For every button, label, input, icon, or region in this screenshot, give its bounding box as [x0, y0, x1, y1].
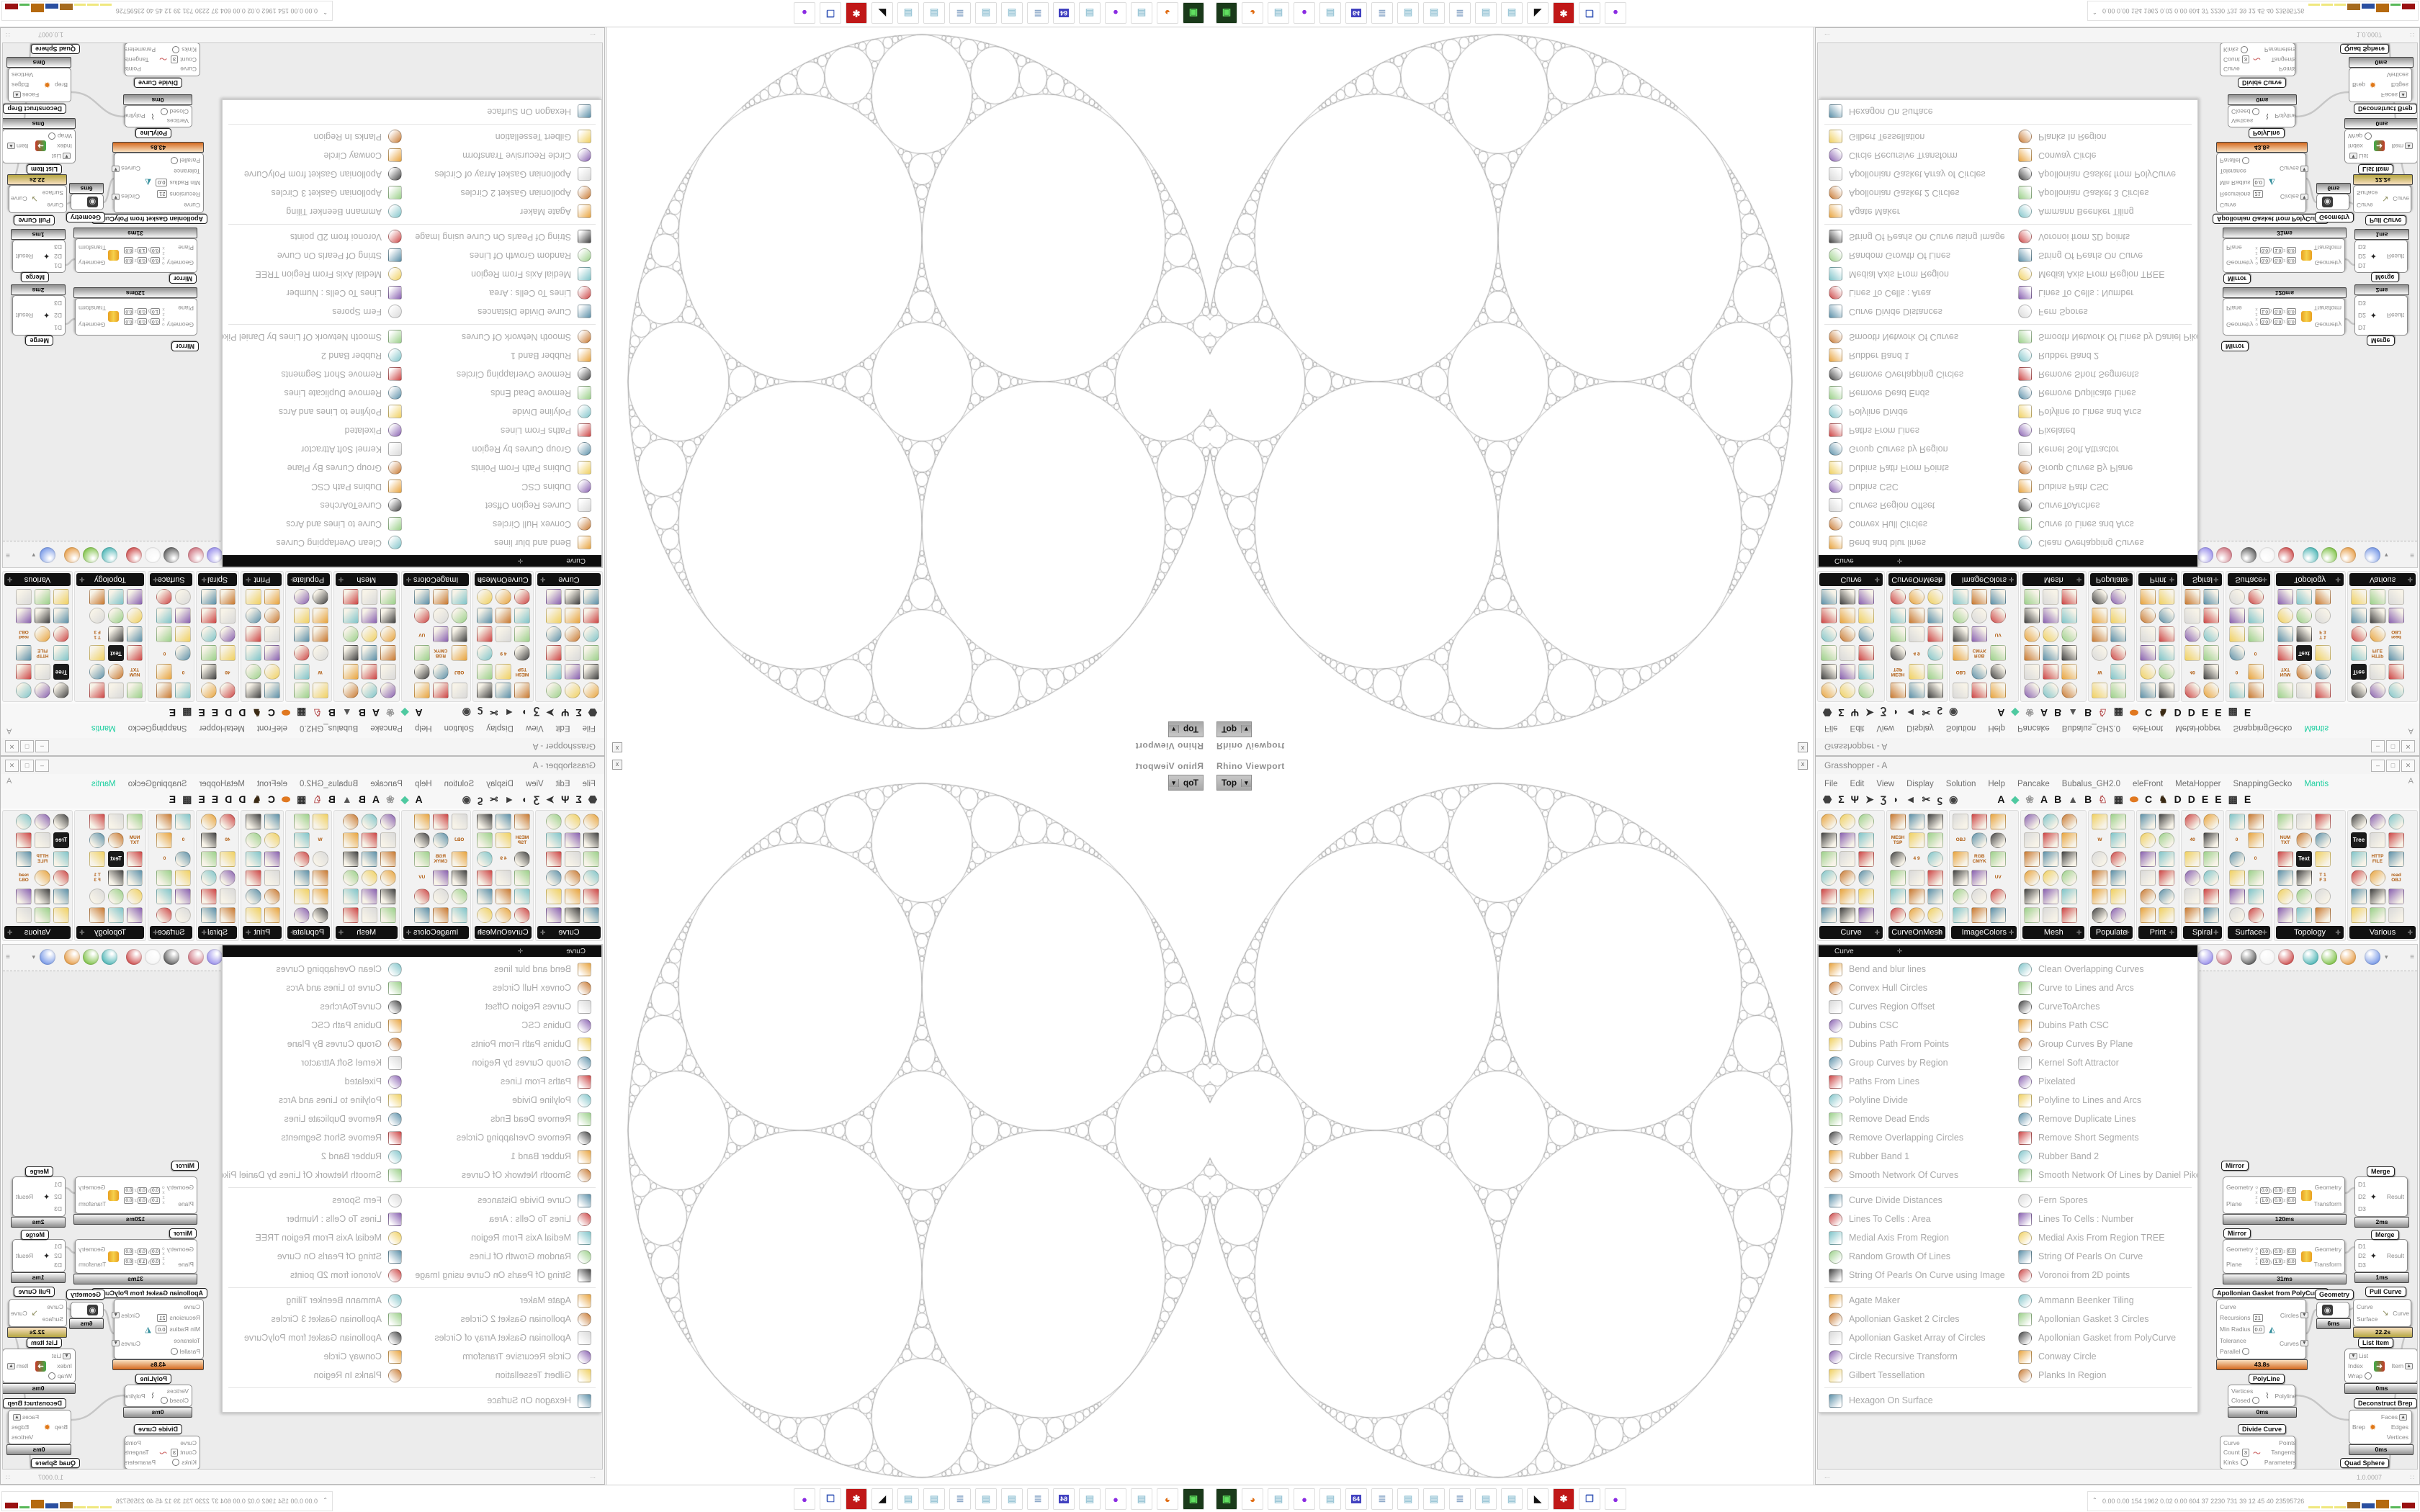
list-item-pixelated[interactable]: Pixelated	[223, 1072, 412, 1091]
component-chip-text[interactable]: Text	[108, 645, 124, 661]
component-icon[interactable]	[89, 907, 105, 923]
component-icon[interactable]	[546, 907, 562, 923]
plugin-tab-16[interactable]: ▲	[2068, 794, 2078, 804]
component-icon[interactable]	[2092, 907, 2107, 923]
component-icon[interactable]	[380, 626, 396, 642]
plugin-tab-12[interactable]: ◆	[2011, 794, 2019, 804]
menu-item-mantis[interactable]: Mantis	[91, 780, 116, 788]
plugin-tab-1[interactable]: Σ	[1838, 794, 1844, 804]
window-blue-icon[interactable]: ❒	[820, 1488, 841, 1510]
minimize-button[interactable]: –	[2371, 760, 2385, 772]
component-chip-http-file[interactable]: HTTP FILE	[2370, 851, 2385, 867]
plugin-tab-4[interactable]: Ʒ	[1881, 794, 1887, 804]
value-box[interactable]: 0.0	[2253, 1326, 2264, 1333]
plugin-tab-14[interactable]: A	[372, 708, 380, 718]
plugin-tab-9[interactable]: ◉	[1949, 794, 1958, 804]
component-icon[interactable]	[2203, 870, 2219, 886]
group-pill-mesh[interactable]: Mesh✛	[2022, 926, 2084, 939]
list-item-gilbert-tessellation[interactable]: Gilbert Tessellation	[1819, 1366, 2008, 1385]
expand-icon[interactable]: ✛	[2335, 576, 2341, 584]
list-item-agate-maker[interactable]: Agate Maker	[412, 202, 601, 221]
component-icon[interactable]	[220, 645, 236, 661]
resize-grip[interactable]: ∷	[5, 1474, 10, 1482]
component-icon[interactable]	[2203, 645, 2219, 661]
plugin-tab-0[interactable]: ⬣	[588, 708, 597, 718]
component-icon[interactable]	[2140, 832, 2156, 848]
maximize-button[interactable]: □	[2386, 740, 2400, 752]
node-label-merge[interactable]: Merge	[2367, 1166, 2395, 1176]
plugin-tab-0[interactable]: ⬣	[1823, 794, 1832, 804]
list-item-smooth-network-of-lines-by-daniel-piker[interactable]: Smooth Network Of Lines by Daniel Piker	[2008, 1166, 2197, 1184]
component-icon[interactable]	[1971, 589, 1987, 605]
component-icon[interactable]	[2203, 626, 2219, 642]
group-pill-surface[interactable]: Surface✛	[150, 573, 192, 586]
toggle-icon[interactable]	[48, 132, 55, 140]
component-icon[interactable]	[156, 832, 172, 848]
list-item-string-of-pearls-on-curve-using-image[interactable]: String Of Pearls On Curve using Image	[412, 1266, 601, 1284]
node-label-mirror[interactable]: Mirror	[169, 274, 197, 284]
list-item-lines-to-cells-area[interactable]: Lines To Cells : Area	[412, 284, 601, 302]
component-icon[interactable]	[2092, 851, 2107, 867]
component-icon[interactable]	[583, 683, 599, 698]
plugin-tab-3[interactable]: ➤	[1865, 794, 1874, 804]
list-item-lines-to-cells-number[interactable]: Lines To Cells : Number	[223, 1210, 412, 1228]
component-icon[interactable]	[2315, 832, 2331, 848]
plugin-tab-26[interactable]: E	[198, 708, 205, 718]
menu-item-snappinggecko[interactable]: SnappingGecko	[128, 724, 187, 732]
list-item-planks-in-region[interactable]: Planks In Region	[2008, 1366, 2197, 1385]
component-icon[interactable]	[2024, 851, 2040, 867]
component-icon[interactable]	[201, 870, 217, 886]
list-item-string-of-pearls-on-curve-using-image[interactable]: String Of Pearls On Curve using Image	[412, 228, 601, 246]
component-icon[interactable]	[2315, 645, 2331, 661]
component-icon[interactable]	[1858, 626, 1874, 642]
component-icon[interactable]	[477, 683, 493, 698]
node-label-list-item[interactable]: List Item	[27, 1338, 62, 1348]
component-icon[interactable]	[583, 888, 599, 904]
component-icon[interactable]	[16, 683, 32, 698]
component-icon[interactable]	[1927, 664, 1943, 680]
node-merge[interactable]: D1D2D3✦Result	[12, 1239, 66, 1272]
list-item-medial-axis-from-region[interactable]: Medial Axis From Region	[1819, 265, 2008, 284]
group-pill-imagecolors[interactable]: ImageColors✛	[1951, 926, 2017, 939]
terminal-green-icon[interactable]: ▣	[1216, 2, 1237, 24]
list-item-fern-spores[interactable]: Fern Spores	[2008, 1191, 2197, 1210]
component-icon[interactable]	[583, 645, 599, 661]
list-item-circle-recursive-transform[interactable]: Circle Recursive Transform	[412, 146, 601, 165]
plugin-tab-27[interactable]: ▩	[2228, 794, 2238, 804]
component-icon[interactable]	[1990, 683, 2006, 698]
chevron-up-icon[interactable]: ⌃	[323, 9, 328, 15]
component-icon[interactable]	[1858, 608, 1874, 624]
component-chip-text[interactable]: Text	[2296, 645, 2312, 661]
node-label-geometry[interactable]: Geometry	[2315, 1290, 2354, 1300]
component-icon[interactable]	[2024, 608, 2040, 624]
notepad-icon[interactable]: ▤	[923, 2, 945, 24]
menu-item-elefront[interactable]: eleFront	[257, 724, 287, 732]
component-icon[interactable]	[2159, 589, 2174, 605]
component-icon[interactable]	[1821, 683, 1837, 698]
component-icon[interactable]	[2203, 888, 2219, 904]
list-item-dubins-path-from-points[interactable]: Dubins Path From Points	[1819, 1035, 2008, 1053]
component-icon[interactable]	[201, 683, 217, 698]
plugin-tab-27[interactable]: ▩	[182, 708, 192, 718]
group-pill-populate[interactable]: Populate✛	[2090, 926, 2132, 939]
component-icon[interactable]	[1927, 589, 1943, 605]
expand-icon[interactable]: ✛	[201, 576, 207, 584]
component-icon[interactable]	[2315, 664, 2331, 680]
component-icon[interactable]	[313, 851, 328, 867]
list-item-remove-duplicate-lines[interactable]: Remove Duplicate Lines	[223, 1110, 412, 1128]
node-quad-sphere[interactable]: BaseRadius1.0o x0.0y0.0z0.0z x0.0y0.0z1.…	[4, 1469, 114, 1470]
node-divide-curve[interactable]: CurveCount3Kinks〜PointsTangentsParameter…	[2220, 1436, 2295, 1470]
plugin-tab-28[interactable]: E	[169, 794, 176, 804]
component-icon[interactable]	[16, 645, 32, 661]
component-icon[interactable]	[565, 608, 581, 624]
component-icon[interactable]	[246, 626, 261, 642]
component-icon[interactable]	[433, 832, 449, 848]
group-pill-populate[interactable]: Populate✛	[287, 573, 329, 586]
component-icon[interactable]	[1909, 589, 1924, 605]
menu-item-bubalus-gh2-0[interactable]: Bubalus_GH2.0	[2062, 724, 2120, 732]
component-icon[interactable]	[246, 814, 261, 829]
group-pill-various[interactable]: Various✛	[4, 573, 71, 586]
component-chip-text[interactable]: Text	[108, 851, 124, 867]
node-merge[interactable]: D1D2D3✦Result	[12, 1176, 66, 1217]
component-icon[interactable]	[2315, 814, 2331, 829]
component-icon[interactable]	[583, 851, 599, 867]
list-item-planks-in-region[interactable]: Planks In Region	[2008, 127, 2197, 146]
component-icon[interactable]	[2277, 683, 2293, 698]
component-icon[interactable]	[201, 645, 217, 661]
expand-icon[interactable]: ✛	[2169, 576, 2175, 584]
list-item-kernel-soft-attractor[interactable]: Kernel Soft Attractor	[2008, 1053, 2197, 1072]
list-item-rubber-band-2[interactable]: Rubber Band 2	[2008, 1147, 2197, 1166]
notepad-icon[interactable]: ▤	[1131, 2, 1152, 24]
component-icon[interactable]	[1858, 645, 1874, 661]
component-icon[interactable]	[2248, 589, 2264, 605]
menu-item-file[interactable]: File	[1824, 780, 1838, 788]
plugin-tab-22[interactable]: ♞	[252, 708, 261, 718]
component-icon[interactable]	[108, 888, 124, 904]
component-chip-tree[interactable]: Tree	[53, 664, 69, 680]
plugin-tab-16[interactable]: ▲	[2068, 708, 2078, 718]
list-item-group-curves-by-plane[interactable]: Group Curves By Plane	[2008, 1035, 2197, 1053]
component-icon[interactable]	[2388, 851, 2404, 867]
component-icon[interactable]	[362, 888, 377, 904]
component-chip-w[interactable]: W	[2092, 832, 2107, 848]
node-merge[interactable]: D1D2D3✦Result	[2354, 295, 2408, 336]
plugin-tab-14[interactable]: A	[2040, 794, 2048, 804]
list-item-planks-in-region[interactable]: Planks In Region	[223, 1366, 412, 1385]
firefox-icon[interactable]: ◕	[1157, 2, 1178, 24]
notepad-icon[interactable]: ▤	[897, 1488, 919, 1510]
value-box[interactable]: 21	[157, 190, 167, 198]
plugin-tab-25[interactable]: E	[212, 794, 218, 804]
component-icon[interactable]	[2184, 870, 2200, 886]
component-icon[interactable]	[201, 589, 217, 605]
fox-black-icon[interactable]: ◣	[871, 1488, 893, 1510]
component-icon[interactable]	[1839, 589, 1855, 605]
node-label-geometry[interactable]: Geometry	[66, 1290, 105, 1300]
component-chip-40[interactable]: 40	[220, 832, 236, 848]
component-icon[interactable]	[1953, 683, 1968, 698]
group-pill-surface[interactable]: Surface✛	[150, 926, 192, 939]
list-item-rubber-band-2[interactable]: Rubber Band 2	[2008, 346, 2197, 365]
plugin-tab-22[interactable]: ♞	[2159, 794, 2168, 804]
menu-item-file[interactable]: File	[582, 724, 596, 732]
component-icon[interactable]	[2043, 814, 2058, 829]
component-icon[interactable]	[2203, 907, 2219, 923]
plugin-tab-11[interactable]: A	[416, 708, 423, 718]
component-icon[interactable]	[2140, 814, 2156, 829]
notepad-icon[interactable]: ▤	[1475, 1488, 1497, 1510]
component-icon[interactable]	[156, 608, 172, 624]
expand-icon[interactable]: ✛	[2124, 576, 2130, 584]
list-item-agate-maker[interactable]: Agate Maker	[412, 1291, 601, 1310]
node-mirror[interactable]: GeometryPlaneo x0.0y0.0z0.0z x1.0y0.0z0.…	[2223, 298, 2345, 336]
list-item-smooth-network-of-curves[interactable]: Smooth Network Of Curves	[412, 1166, 601, 1184]
notepad-icon[interactable]: ▤	[1501, 2, 1523, 24]
component-icon[interactable]	[246, 608, 261, 624]
component-icon[interactable]	[1839, 683, 1855, 698]
component-icon[interactable]	[313, 683, 328, 698]
group-pill-imagecolors[interactable]: ImageColors✛	[1951, 573, 2017, 586]
list-item-smooth-network-of-lines-by-daniel-piker[interactable]: Smooth Network Of Lines by Daniel Piker	[223, 1166, 412, 1184]
component-icon[interactable]	[343, 626, 359, 642]
plugin-tab-13[interactable]: ❀	[386, 708, 395, 718]
component-icon[interactable]	[220, 814, 236, 829]
component-icon[interactable]	[362, 664, 377, 680]
component-icon[interactable]	[1858, 832, 1874, 848]
component-icon[interactable]	[175, 907, 191, 923]
list-item-medial-axis-from-region-tree[interactable]: Medial Axis From Region TREE	[223, 1228, 412, 1247]
component-icon[interactable]	[565, 589, 581, 605]
list-item-polyline-divide[interactable]: Polyline Divide	[1819, 402, 2008, 421]
component-chip-4-9[interactable]: 4 9	[496, 645, 511, 661]
node-label-apollonian-gasket-from-polycurve[interactable]: Apollonian Gasket from PolyCurve	[2213, 1288, 2329, 1298]
component-icon[interactable]	[1990, 645, 2006, 661]
component-icon[interactable]	[2159, 851, 2174, 867]
component-icon[interactable]	[496, 626, 511, 642]
list-item-string-of-pearls-on-curve[interactable]: String Of Pearls On Curve	[223, 246, 412, 265]
list-item-smooth-network-of-curves[interactable]: Smooth Network Of Curves	[412, 328, 601, 346]
plugin-tab-7[interactable]: ✂	[490, 794, 498, 804]
component-icon[interactable]	[127, 888, 143, 904]
plugin-tab-5[interactable]: ◗	[1893, 794, 1899, 804]
node-mirror[interactable]: GeometryPlaneo x0.0y0.0z0.0z x1.0y0.0z0.…	[2223, 1176, 2345, 1214]
component-icon[interactable]	[565, 645, 581, 661]
component-icon[interactable]	[583, 832, 599, 848]
list-item-lines-to-cells-number[interactable]: Lines To Cells : Number	[2008, 284, 2197, 302]
component-icon[interactable]	[127, 870, 143, 886]
component-icon[interactable]	[2203, 589, 2219, 605]
list-item-convex-hull-circles[interactable]: Convex Hull Circles	[1819, 978, 2008, 997]
component-icon[interactable]	[452, 814, 467, 829]
component-icon[interactable]	[565, 851, 581, 867]
component-icon[interactable]	[2248, 626, 2264, 642]
component-icon[interactable]	[2043, 870, 2058, 886]
list-item-curve-divide-distances[interactable]: Curve Divide Distances	[1819, 302, 2008, 321]
component-icon[interactable]	[2043, 589, 2058, 605]
expand-icon[interactable]: ✛	[540, 576, 546, 584]
plugin-tab-3[interactable]: ➤	[1865, 708, 1874, 718]
list-item-dubins-csc[interactable]: Dubins CSC	[412, 477, 601, 496]
list-item-apollonian-gasket-2-circles[interactable]: Apollonian Gasket 2 Circles	[1819, 1310, 2008, 1328]
resize-grip[interactable]: ∷	[2410, 1474, 2415, 1482]
component-icon[interactable]	[2277, 645, 2293, 661]
list-item-remove-short-segments[interactable]: Remove Short Segments	[2008, 1128, 2197, 1147]
component-icon[interactable]	[343, 589, 359, 605]
list-item-remove-dead-ends[interactable]: Remove Dead Ends	[412, 384, 601, 402]
expand-icon[interactable]: ✛	[153, 929, 158, 937]
grasshopper-purple-icon[interactable]: ●	[794, 1488, 815, 1510]
component-icon[interactable]	[264, 589, 280, 605]
component-icon[interactable]	[89, 683, 105, 698]
component-icon[interactable]	[1839, 814, 1855, 829]
list-item-apollonian-gasket-array-of-circles[interactable]: Apollonian Gasket Array of Circles	[1819, 1328, 2008, 1347]
component-icon[interactable]	[2110, 851, 2126, 867]
component-icon[interactable]	[362, 814, 377, 829]
component-icon[interactable]	[2388, 645, 2404, 661]
component-icon[interactable]	[156, 683, 172, 698]
rhino-viewport-window[interactable]: Rhino Viewport x Top ▾	[1210, 27, 1814, 756]
component-icon[interactable]	[1821, 589, 1837, 605]
toggle-icon[interactable]	[2242, 1348, 2249, 1355]
list-item-group-curves-by-region[interactable]: Group Curves by Region	[1819, 1053, 2008, 1072]
component-icon[interactable]	[156, 870, 172, 886]
component-icon[interactable]	[1890, 814, 1906, 829]
plugin-tab-16[interactable]: ▲	[342, 708, 352, 718]
component-chip-num-txt[interactable]: NUM TXT	[2277, 832, 2293, 848]
component-icon[interactable]	[2140, 888, 2156, 904]
component-icon[interactable]	[2184, 888, 2200, 904]
component-icon[interactable]	[343, 888, 359, 904]
node-label-deconstruct-brep[interactable]: Deconstruct Brep	[3, 1398, 66, 1408]
plugin-tab-19[interactable]: ▦	[297, 794, 306, 804]
menu-item-solution[interactable]: Solution	[444, 724, 475, 732]
component-icon[interactable]	[433, 870, 449, 886]
plugin-tab-22[interactable]: ♞	[2159, 708, 2168, 718]
list-item-fern-spores[interactable]: Fern Spores	[223, 1191, 412, 1210]
menu-item-help[interactable]: Help	[1988, 780, 2005, 788]
component-icon[interactable]	[2110, 608, 2126, 624]
script-icon[interactable]: ≣	[1449, 1488, 1471, 1510]
node-geometry[interactable]: ◉	[2316, 194, 2349, 210]
component-icon[interactable]	[2229, 645, 2245, 661]
node-mirror[interactable]: GeometryPlaneo x0.0y0.0z0.0z x1.0y0.0z0.…	[75, 1176, 197, 1214]
node-apollonian-gasket-from-polycurve[interactable]: CurveRecursions21Min Radius0.0ToleranceP…	[114, 1299, 204, 1359]
node-label-merge[interactable]: Merge	[21, 272, 49, 282]
component-chip-0[interactable]: 0	[175, 832, 191, 848]
component-icon[interactable]	[2043, 626, 2058, 642]
component-icon[interactable]	[2184, 851, 2200, 867]
component-icon[interactable]	[264, 888, 280, 904]
component-icon[interactable]	[2110, 870, 2126, 886]
component-icon[interactable]	[2296, 608, 2312, 624]
list-item-dubins-path-csc[interactable]: Dubins Path CSC	[223, 477, 412, 496]
plugin-tab-28[interactable]: E	[2244, 708, 2251, 718]
list-item-remove-overlapping-circles[interactable]: Remove Overlapping Circles	[412, 1128, 601, 1147]
component-icon[interactable]	[294, 832, 310, 848]
component-icon[interactable]	[2388, 608, 2404, 624]
component-icon[interactable]	[2159, 608, 2174, 624]
component-chip-num-txt[interactable]: NUM TXT	[2277, 664, 2293, 680]
list-item-paths-from-lines[interactable]: Paths From Lines	[1819, 421, 2008, 440]
list-item-medial-axis-from-region-tree[interactable]: Medial Axis From Region TREE	[2008, 1228, 2197, 1247]
component-icon[interactable]	[1890, 888, 1906, 904]
expand-icon[interactable]: ✛	[2262, 576, 2267, 584]
list-item-apollonian-gasket-3-circles[interactable]: Apollonian Gasket 3 Circles	[223, 1310, 412, 1328]
component-icon[interactable]	[546, 832, 562, 848]
component-icon[interactable]	[35, 626, 50, 642]
component-icon[interactable]	[414, 888, 430, 904]
plugin-tab-3[interactable]: ➤	[546, 708, 555, 718]
component-icon[interactable]	[2159, 907, 2174, 923]
component-icon[interactable]	[2092, 870, 2107, 886]
component-icon[interactable]	[2043, 832, 2058, 848]
menu-item-bubalus-gh2-0[interactable]: Bubalus_GH2.0	[300, 724, 358, 732]
component-icon[interactable]	[496, 832, 511, 848]
plugin-tab-8[interactable]: ϛ	[1937, 708, 1942, 718]
plugin-tab-1[interactable]: Σ	[575, 794, 581, 804]
plugin-tab-12[interactable]: ◆	[2011, 708, 2019, 718]
component-icon[interactable]	[2370, 664, 2385, 680]
component-icon[interactable]	[53, 888, 69, 904]
value-box[interactable]: 21	[2253, 1314, 2263, 1322]
list-item-circle-recursive-transform[interactable]: Circle Recursive Transform	[1819, 146, 2008, 165]
node-label-mirror[interactable]: Mirror	[2221, 1161, 2249, 1171]
list-item-lines-to-cells-area[interactable]: Lines To Cells : Area	[1819, 1210, 2008, 1228]
component-icon[interactable]	[220, 608, 236, 624]
component-icon[interactable]	[35, 814, 50, 829]
component-chip-rgb-cmyk[interactable]: RGB CMYK	[433, 851, 449, 867]
list-item-clean-overlapping-curves[interactable]: Clean Overlapping Curves	[223, 960, 412, 978]
component-icon[interactable]	[246, 664, 261, 680]
grasshopper-window[interactable]: Grasshopper - A – □ ✕ FileEditViewDispla…	[0, 756, 605, 1485]
plugin-tab-8[interactable]: ϛ	[478, 708, 483, 718]
component-icon[interactable]	[362, 683, 377, 698]
chevron-up-icon[interactable]: ⌃	[2092, 1497, 2097, 1503]
component-icon[interactable]	[89, 832, 105, 848]
expand-icon[interactable]: ✛	[7, 576, 13, 584]
component-icon[interactable]	[2140, 589, 2156, 605]
component-icon[interactable]	[220, 626, 236, 642]
list-item-curves-region-offset[interactable]: Curves Region Offset	[412, 997, 601, 1016]
plugin-tab-5[interactable]: ◗	[521, 794, 526, 804]
component-icon[interactable]	[1821, 814, 1837, 829]
component-icon[interactable]	[565, 814, 581, 829]
component-icon[interactable]	[496, 870, 511, 886]
component-icon[interactable]	[477, 589, 493, 605]
component-icon[interactable]	[2061, 664, 2077, 680]
component-icon[interactable]	[1927, 870, 1943, 886]
component-icon[interactable]	[201, 664, 217, 680]
list-item-circle-recursive-transform[interactable]: Circle Recursive Transform	[412, 1347, 601, 1366]
plugin-tab-4[interactable]: Ʒ	[534, 794, 540, 804]
settings-red-icon[interactable]: ✱	[846, 2, 867, 24]
list-item-curves-region-offset[interactable]: Curves Region Offset	[1819, 997, 2008, 1016]
component-icon[interactable]	[2061, 626, 2077, 642]
component-icon[interactable]	[264, 851, 280, 867]
component-icon[interactable]	[2229, 626, 2245, 642]
node-label-mirror[interactable]: Mirror	[2221, 341, 2249, 351]
toggle-icon[interactable]	[171, 157, 178, 164]
menu-item-metahopper[interactable]: MetaHopper	[2175, 780, 2220, 788]
plugin-tab-24[interactable]: D	[225, 794, 232, 804]
list-item-dubins-path-csc[interactable]: Dubins Path CSC	[223, 1016, 412, 1035]
list-item-group-curves-by-region[interactable]: Group Curves by Region	[412, 1053, 601, 1072]
